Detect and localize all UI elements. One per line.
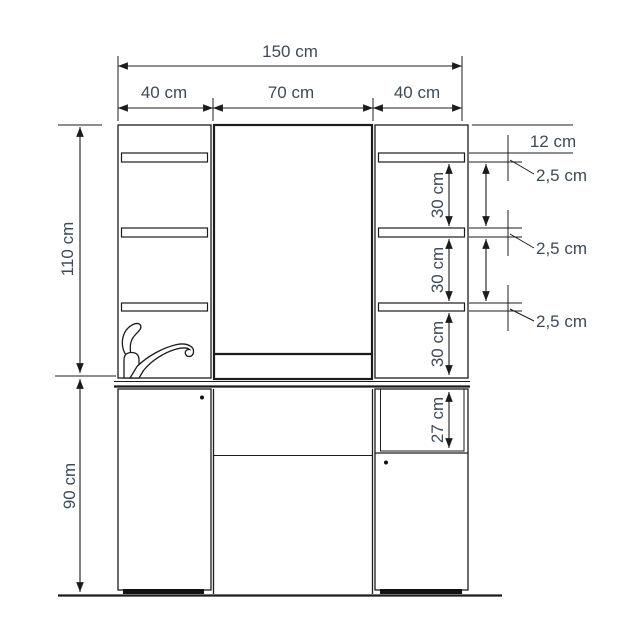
open-compartment: [381, 389, 465, 451]
faucet: [122, 323, 193, 378]
label-top-offset: 12 cm: [530, 132, 576, 151]
leader-line: [510, 234, 534, 248]
label-lower-height: 90 cm: [60, 463, 79, 509]
label-compartment-height: 27 cm: [428, 397, 447, 443]
right-shelf-2: [379, 228, 465, 237]
faucet-lever: [122, 323, 140, 356]
lower-left-cabinet: [118, 389, 211, 590]
right-shelf-1: [379, 153, 465, 162]
center-mirror-panel: [214, 125, 372, 379]
label-right-width: 40 cm: [394, 83, 440, 102]
lower-right-cabinet: [375, 389, 468, 590]
dimension-labels: 150 cm 40 cm 70 cm 40 cm 110 cm 90 cm 12…: [58, 42, 587, 509]
furniture-dimension-drawing: 150 cm 40 cm 70 cm 40 cm 110 cm 90 cm 12…: [0, 0, 636, 636]
label-shelf-thickness-3: 2,5 cm: [536, 312, 587, 331]
right-shelf-3: [379, 303, 465, 311]
right-door-knob: [384, 461, 388, 465]
label-shelf-thickness-1: 2,5 cm: [536, 166, 587, 185]
drawing-canvas: 150 cm 40 cm 70 cm 40 cm 110 cm 90 cm 12…: [0, 0, 636, 636]
label-upper-height: 110 cm: [58, 222, 77, 277]
label-left-width: 40 cm: [141, 83, 187, 102]
upper-right-column: [375, 125, 468, 378]
label-center-width: 70 cm: [268, 83, 314, 102]
left-shelf-2: [122, 228, 208, 237]
label-total-width: 150 cm: [262, 42, 318, 61]
label-shelf-thickness-2: 2,5 cm: [536, 239, 587, 258]
label-shelf-gap-2: 30 cm: [428, 247, 447, 293]
label-shelf-gap-3: 30 cm: [428, 321, 447, 367]
left-door-knob: [200, 396, 204, 400]
left-shelf-1: [122, 153, 208, 162]
label-shelf-gap-1: 30 cm: [428, 172, 447, 218]
left-plinth: [123, 589, 204, 594]
left-shelf-3: [122, 303, 208, 311]
right-plinth: [380, 589, 462, 594]
